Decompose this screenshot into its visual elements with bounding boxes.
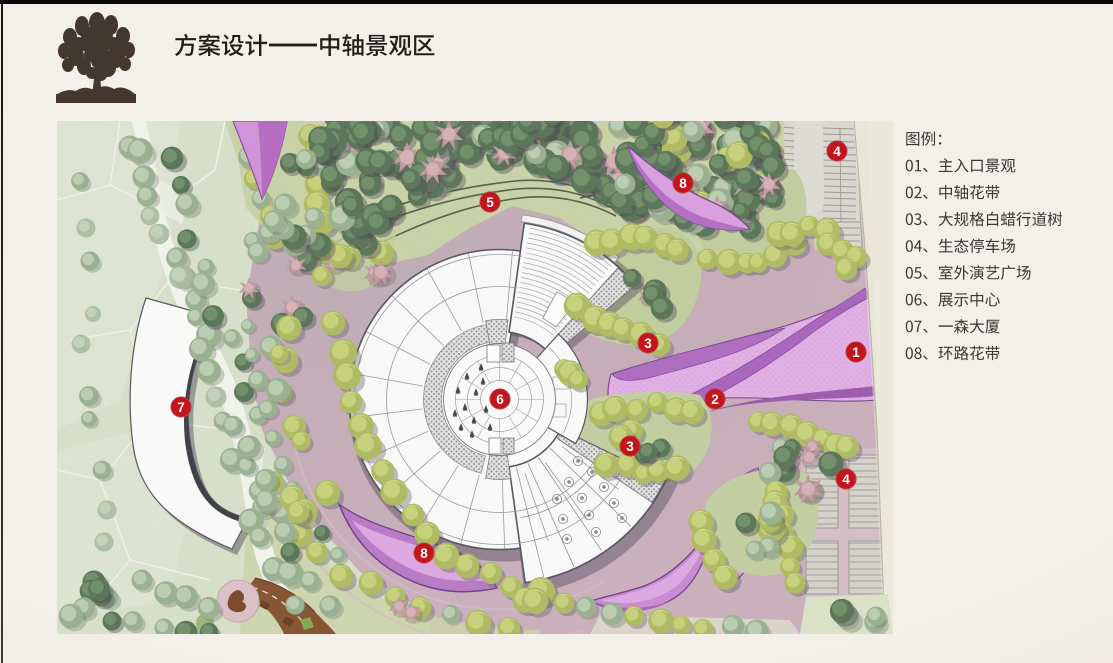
svg-text:3: 3 [644, 336, 652, 351]
svg-text:7: 7 [177, 400, 185, 415]
svg-text:1: 1 [852, 345, 860, 360]
svg-text:6: 6 [496, 392, 504, 407]
svg-text:4: 4 [842, 472, 850, 487]
svg-text:5: 5 [486, 195, 494, 210]
svg-text:3: 3 [626, 439, 634, 454]
svg-text:8: 8 [420, 546, 428, 561]
svg-text:4: 4 [833, 144, 841, 159]
svg-text:8: 8 [679, 176, 687, 191]
svg-text:2: 2 [711, 392, 719, 407]
